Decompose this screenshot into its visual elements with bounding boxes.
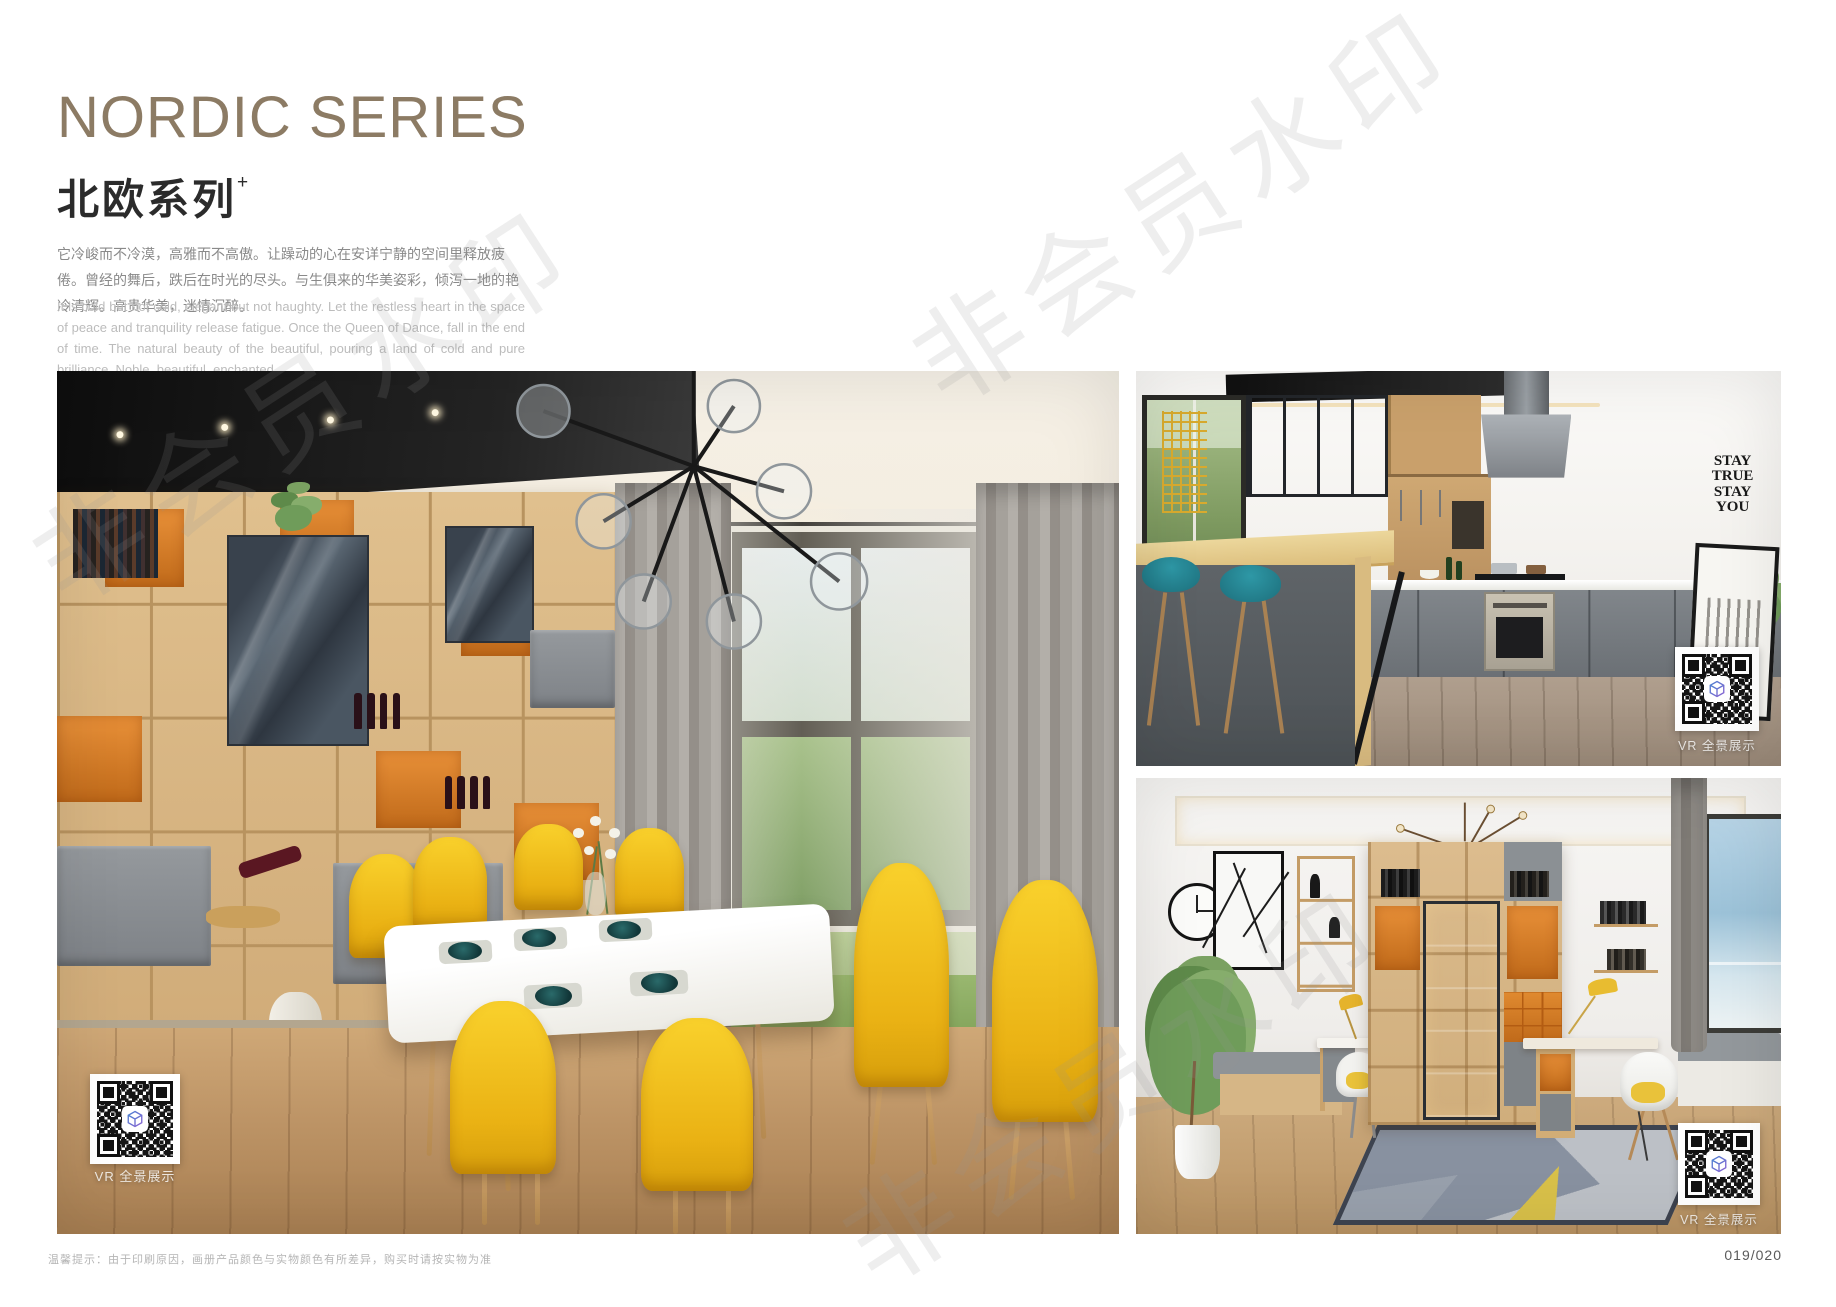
abstract-art-frame bbox=[1213, 851, 1284, 970]
bar-stool bbox=[1220, 565, 1281, 603]
glass-display-cabinet bbox=[227, 535, 369, 746]
description-english: It is cold but not cold, elegant but not… bbox=[57, 296, 525, 380]
curtain bbox=[1671, 778, 1706, 1052]
plant bbox=[275, 505, 312, 531]
flower bbox=[573, 828, 584, 837]
vr-panorama-label: VR 全景展示 bbox=[77, 1166, 193, 1185]
books bbox=[1607, 949, 1646, 970]
dining-chair bbox=[615, 828, 684, 919]
wall-box-shelves bbox=[1297, 856, 1355, 993]
qr-logo-cube-icon bbox=[1704, 676, 1730, 702]
dining-chair bbox=[514, 824, 583, 910]
kettle bbox=[1526, 565, 1545, 575]
title-superscript: + bbox=[237, 172, 248, 193]
desk-lamp bbox=[1338, 992, 1363, 1010]
yellow-wire-shelf bbox=[1162, 411, 1207, 514]
dining-chair bbox=[413, 837, 487, 932]
grey-cabinet-door bbox=[57, 846, 211, 967]
dining-chair bbox=[992, 880, 1098, 1122]
page-title-cn: 北欧系列+ bbox=[57, 166, 248, 227]
study-room-photo: VR 全景展示 bbox=[1136, 778, 1781, 1234]
chandelier bbox=[482, 371, 886, 682]
dining-chair bbox=[854, 863, 950, 1087]
dining-chair bbox=[450, 1001, 556, 1174]
plant-pot bbox=[1175, 1125, 1220, 1180]
qr-logo-cube-icon bbox=[122, 1106, 148, 1132]
vr-panorama-label: VR 全景展示 bbox=[1666, 735, 1768, 754]
hood-chimney bbox=[1504, 371, 1549, 418]
desk bbox=[1523, 1038, 1658, 1049]
books bbox=[1381, 869, 1420, 896]
window-seat-base bbox=[1678, 1061, 1781, 1107]
eames-chair bbox=[1620, 1052, 1678, 1111]
wine-bottle bbox=[354, 693, 361, 729]
wood-upper-cabinet bbox=[1388, 395, 1481, 474]
desk-lamp bbox=[1586, 976, 1617, 995]
hanging-utensil bbox=[1400, 490, 1402, 522]
glass-display-cabinet bbox=[1423, 901, 1500, 1120]
bar-stool bbox=[1142, 557, 1200, 593]
desk-column bbox=[1536, 1047, 1575, 1138]
vr-qr-code bbox=[90, 1074, 180, 1164]
books bbox=[73, 509, 158, 578]
window bbox=[1704, 814, 1781, 1033]
glass-upper-cabinet bbox=[1246, 395, 1388, 498]
books bbox=[1510, 871, 1549, 896]
spice-rack bbox=[1452, 501, 1484, 548]
books bbox=[1600, 901, 1645, 924]
page-number: 019/020 bbox=[1660, 1247, 1782, 1263]
range-hood bbox=[1481, 414, 1571, 477]
plate bbox=[607, 921, 641, 939]
vr-qr-code bbox=[1678, 1123, 1760, 1205]
orange-cubbies bbox=[1504, 992, 1562, 1042]
yellow-cushion bbox=[1631, 1082, 1665, 1102]
vr-qr-code bbox=[1675, 647, 1759, 731]
qr-logo-cube-icon bbox=[1706, 1151, 1732, 1177]
flower-vase bbox=[585, 872, 606, 915]
pot bbox=[1491, 563, 1517, 575]
dining-room-photo: VR 全景展示 bbox=[57, 371, 1119, 1234]
oven bbox=[1484, 592, 1555, 671]
vr-panorama-label: VR 全景展示 bbox=[1668, 1209, 1770, 1228]
wall-text-stay-true-stay-you: STAY TRUE STAY YOU bbox=[1707, 454, 1759, 515]
kitchen-photo: STAY TRUE STAY YOU VR 全景展示 bbox=[1136, 371, 1781, 766]
floating-shelf bbox=[1594, 924, 1659, 927]
page-title-en: NORDIC SERIES bbox=[57, 84, 528, 151]
floating-shelf bbox=[1594, 970, 1659, 973]
dining-chair bbox=[641, 1018, 753, 1191]
bottle bbox=[1446, 557, 1452, 581]
tea-tray bbox=[206, 906, 280, 928]
footer-notice: 温馨提示：由于印刷原因，画册产品颜色与实物颜色有所差异，购买时请按实物为准 bbox=[48, 1251, 492, 1267]
catalog-page: NORDIC SERIES 北欧系列+ 它冷峻而不冷漠，高雅而不高傲。让躁动的心… bbox=[0, 0, 1836, 1307]
title-cn-text: 北欧系列 bbox=[57, 176, 237, 223]
yellow-cushion bbox=[1346, 1072, 1371, 1089]
wood-floor bbox=[57, 1027, 1119, 1234]
area-rug bbox=[1333, 1125, 1713, 1225]
